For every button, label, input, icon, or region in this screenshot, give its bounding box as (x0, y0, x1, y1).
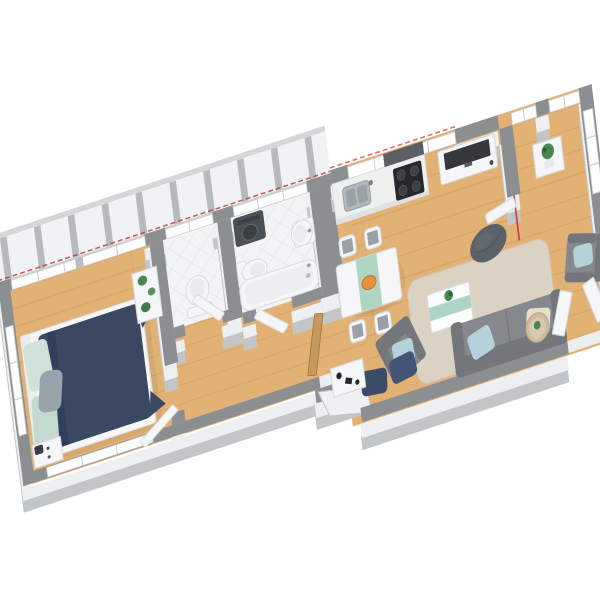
floor-plan-3d-render (0, 0, 600, 600)
corner-armchair (564, 233, 600, 282)
floorplan-canvas (0, 0, 600, 600)
cushion-gray (38, 369, 63, 414)
